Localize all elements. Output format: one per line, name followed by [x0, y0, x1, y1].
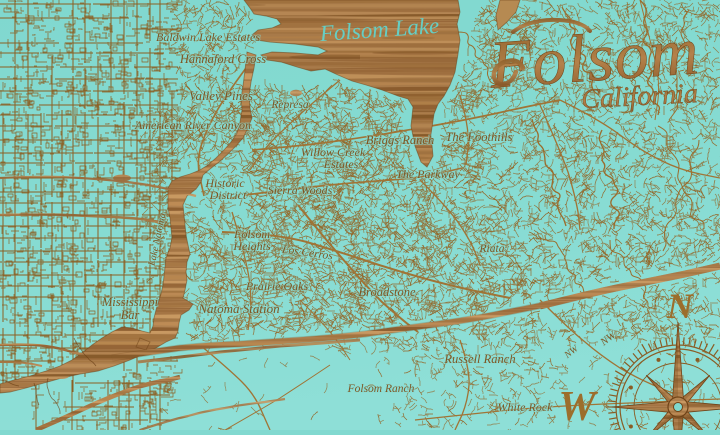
svg-text:Baldwin Lake Estates: Baldwin Lake Estates [156, 30, 260, 44]
svg-text:Hannaford Cross: Hannaford Cross [179, 52, 266, 66]
svg-text:Riata: Riata [479, 243, 505, 255]
svg-text:Mississippi: Mississippi [101, 295, 159, 309]
svg-text:The Parkway: The Parkway [396, 167, 460, 181]
svg-text:Prairie Oaks: Prairie Oaks [245, 279, 309, 293]
svg-text:Heights: Heights [232, 239, 271, 253]
svg-text:District: District [209, 188, 247, 202]
svg-text:Sierra Woods: Sierra Woods [268, 183, 333, 197]
svg-text:Russell Ranch: Russell Ranch [443, 352, 515, 366]
svg-text:N: N [666, 286, 695, 326]
svg-text:The Foothills: The Foothills [445, 130, 512, 144]
svg-text:American River Canyon: American River Canyon [134, 118, 251, 132]
svg-text:Briggs Ranch: Briggs Ranch [366, 133, 434, 147]
svg-text:California: California [581, 78, 699, 115]
svg-text:Estates: Estates [323, 157, 359, 171]
svg-text:Broadstone: Broadstone [358, 285, 416, 299]
svg-text:Represa: Represa [270, 99, 309, 111]
svg-text:White Rock: White Rock [498, 400, 554, 414]
svg-text:W: W [558, 384, 598, 430]
svg-text:Valley Pines: Valley Pines [189, 88, 253, 103]
svg-text:Natoma Station: Natoma Station [197, 301, 279, 316]
svg-text:Folsom Ranch: Folsom Ranch [347, 383, 415, 395]
svg-text:Bar: Bar [121, 308, 140, 322]
